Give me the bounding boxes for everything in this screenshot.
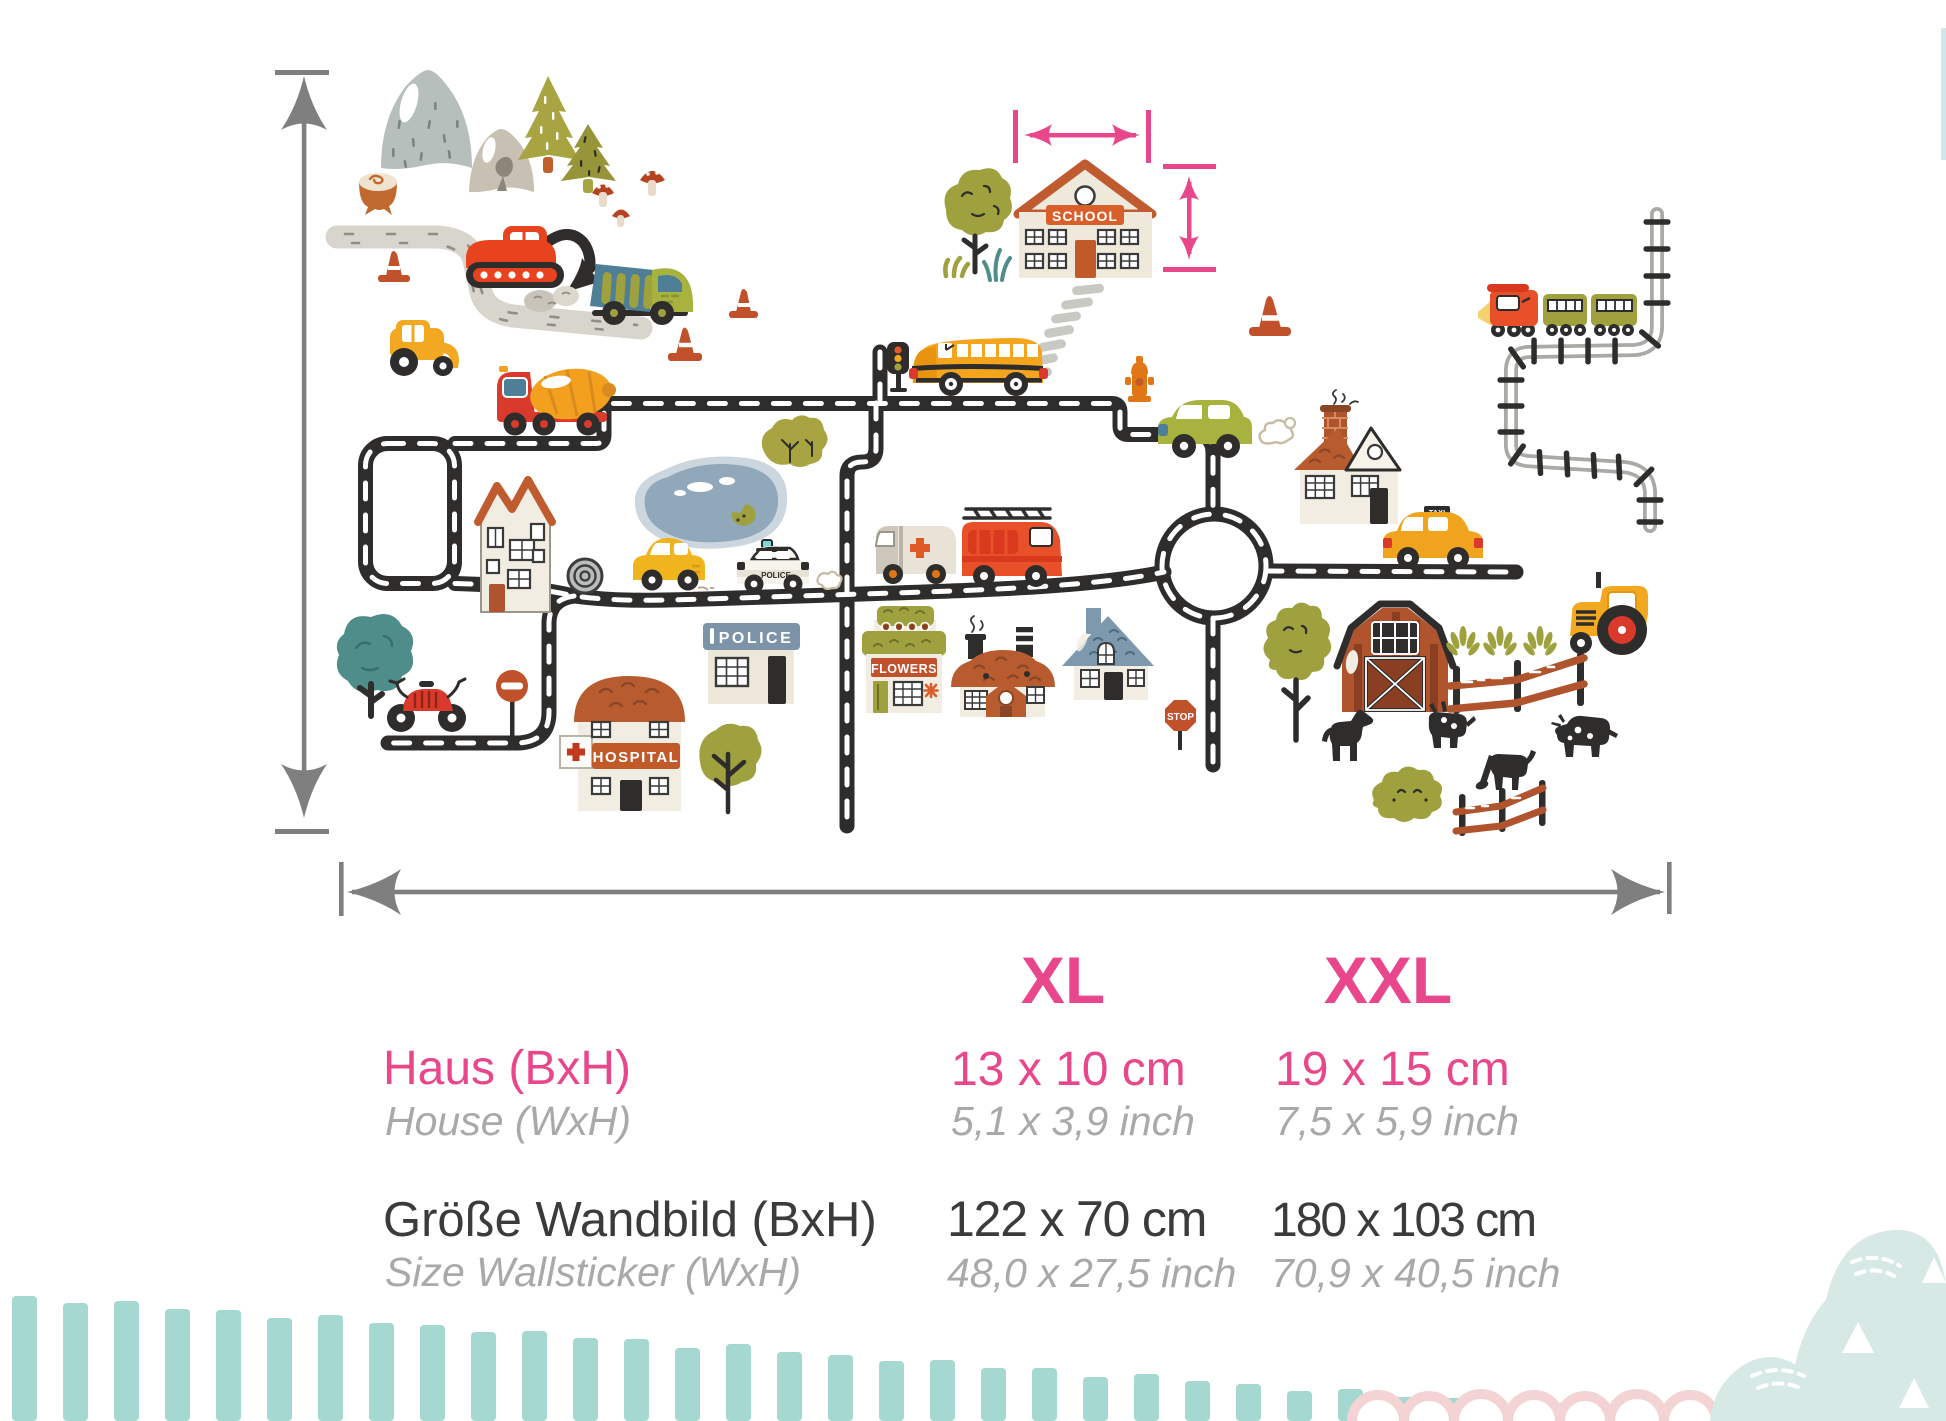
svg-text:5,1 x 3,9 inch: 5,1 x 3,9 inch <box>951 1098 1195 1144</box>
svg-text:122 x 70 cm: 122 x 70 cm <box>947 1191 1206 1247</box>
svg-text:48,0 x 27,5 inch: 48,0 x 27,5 inch <box>947 1250 1236 1296</box>
svg-text:70,9 x 40,5 inch: 70,9 x 40,5 inch <box>1271 1250 1560 1296</box>
svg-text:Haus (BxH): Haus (BxH) <box>383 1042 631 1095</box>
svg-text:XXL: XXL <box>1324 943 1452 1017</box>
svg-text:Size Wallsticker (WxH): Size Wallsticker (WxH) <box>385 1249 801 1295</box>
svg-text:HOSPITAL: HOSPITAL <box>593 749 680 766</box>
svg-text:FLOWERS: FLOWERS <box>871 662 937 676</box>
svg-text:13 x 10 cm: 13 x 10 cm <box>951 1043 1186 1096</box>
svg-text:House (WxH): House (WxH) <box>385 1098 631 1144</box>
svg-text:XL: XL <box>1021 943 1105 1017</box>
svg-text:180 x 103 cm: 180 x 103 cm <box>1271 1194 1535 1247</box>
svg-text:19 x 15 cm: 19 x 15 cm <box>1275 1043 1510 1096</box>
svg-text:SCHOOL: SCHOOL <box>1052 208 1118 224</box>
svg-text:POLICE: POLICE <box>719 630 794 647</box>
svg-text:STOP: STOP <box>1167 712 1194 723</box>
svg-text:7,5 x 5,9 inch: 7,5 x 5,9 inch <box>1275 1098 1519 1144</box>
svg-text:Größe Wandbild (BxH): Größe Wandbild (BxH) <box>383 1193 877 1247</box>
